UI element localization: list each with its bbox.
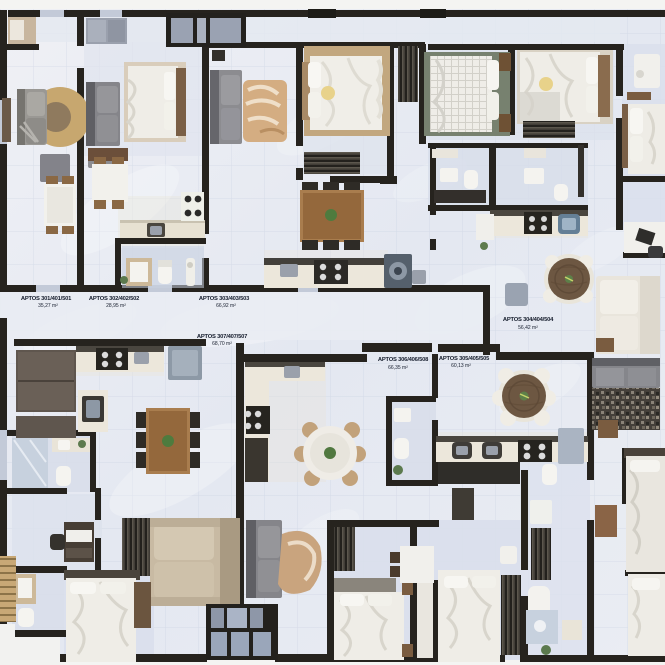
svg-text:56,42 m²: 56,42 m²: [518, 325, 538, 331]
svg-text:APTOS 301/401/501: APTOS 301/401/501: [21, 296, 72, 302]
svg-text:APTOS 305/405/505: APTOS 305/405/505: [439, 356, 490, 362]
svg-text:28,95 m²: 28,95 m²: [106, 303, 126, 309]
svg-text:APTOS 306/406/508: APTOS 306/406/508: [378, 357, 429, 363]
svg-text:APTOS 302/402/502: APTOS 302/402/502: [89, 296, 139, 302]
svg-text:66,35 m²: 66,35 m²: [388, 365, 408, 371]
svg-text:APTOS 307/407/507: APTOS 307/407/507: [197, 334, 247, 340]
svg-text:APTOS 303/403/503: APTOS 303/403/503: [199, 296, 250, 302]
svg-text:68,70 m²: 68,70 m²: [212, 341, 232, 347]
svg-text:35,27 m²: 35,27 m²: [38, 303, 58, 309]
svg-text:66,92 m²: 66,92 m²: [216, 303, 236, 309]
svg-text:60,13 m²: 60,13 m²: [451, 363, 471, 369]
svg-text:APTOS 304/404/504: APTOS 304/404/504: [503, 317, 554, 323]
